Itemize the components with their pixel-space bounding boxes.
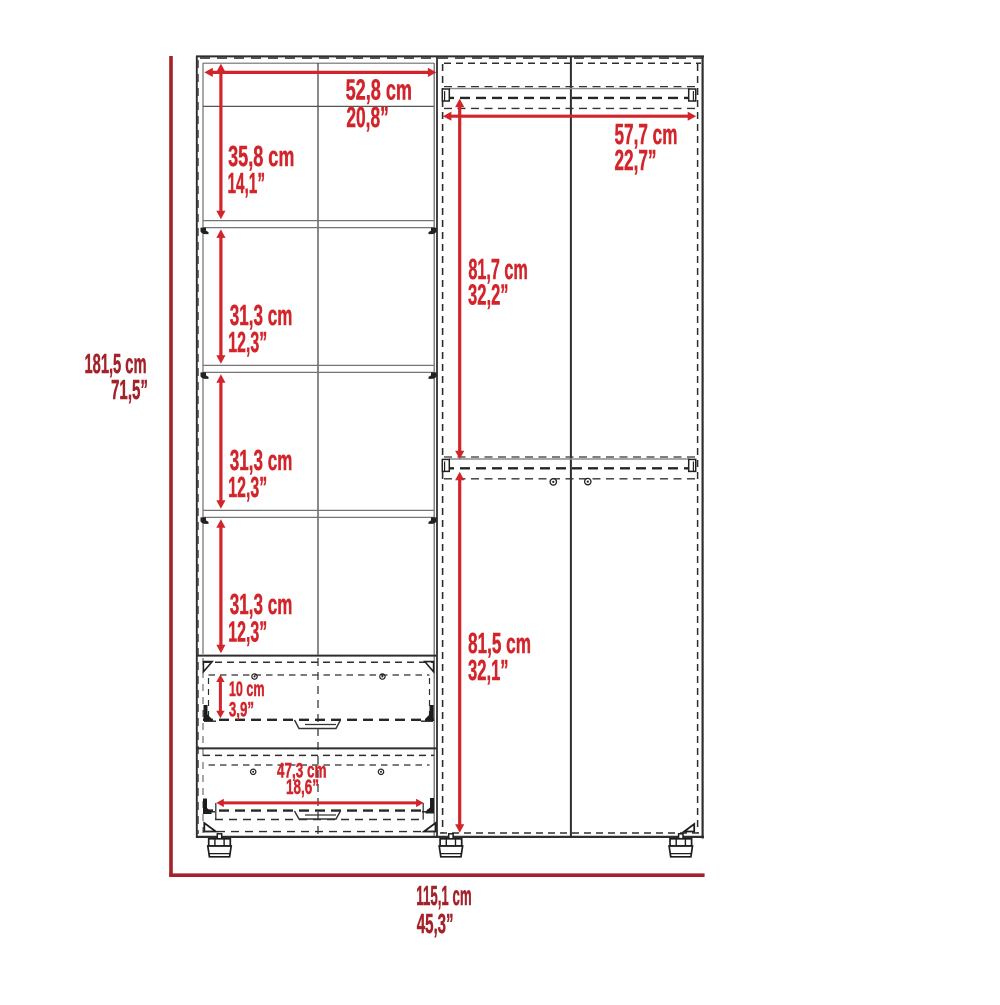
svg-text:22,7”: 22,7” [615, 145, 657, 177]
svg-text:3,9”: 3,9” [229, 697, 254, 721]
svg-text:115,1 cm: 115,1 cm [416, 880, 471, 911]
svg-text:32,1”: 32,1” [468, 655, 509, 687]
svg-text:14,1”: 14,1” [228, 168, 266, 200]
svg-text:45,3”: 45,3” [417, 908, 454, 939]
svg-text:12,3”: 12,3” [228, 472, 267, 504]
svg-text:12,3”: 12,3” [228, 327, 267, 359]
svg-text:12,3”: 12,3” [228, 617, 267, 649]
svg-text:71,5”: 71,5” [111, 374, 148, 405]
svg-text:20,8”: 20,8” [346, 102, 388, 134]
svg-text:18,6”: 18,6” [286, 775, 319, 799]
svg-text:32,2”: 32,2” [468, 280, 509, 312]
